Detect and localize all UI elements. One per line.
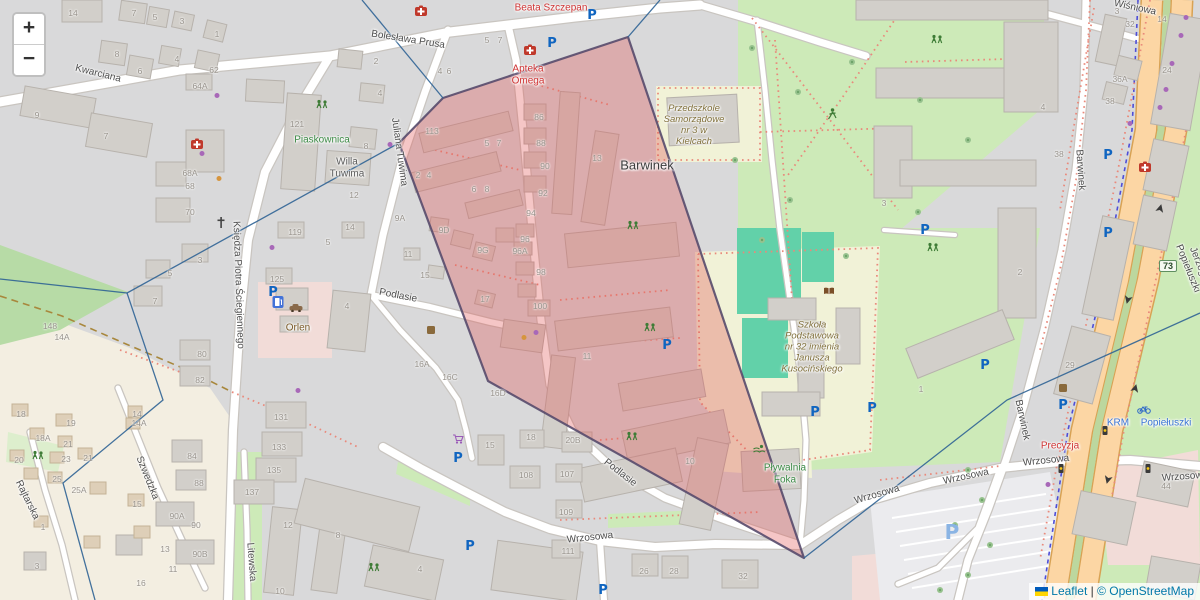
osm-link[interactable]: © OpenStreetMap (1097, 584, 1194, 598)
zoom-control: + − (12, 12, 46, 77)
map-tiles (0, 0, 1200, 600)
ukraine-flag-icon (1035, 587, 1048, 596)
attribution-separator: | (1087, 584, 1097, 598)
zoom-in-button[interactable]: + (14, 14, 44, 45)
attribution-bar: Leaflet | © OpenStreetMap (1029, 583, 1200, 600)
map-canvas[interactable]: KwarcianaBolesława PrusaJuliana TuwimaKs… (0, 0, 1200, 600)
zoom-out-button[interactable]: − (14, 45, 44, 75)
leaflet-link[interactable]: Leaflet (1051, 584, 1087, 598)
